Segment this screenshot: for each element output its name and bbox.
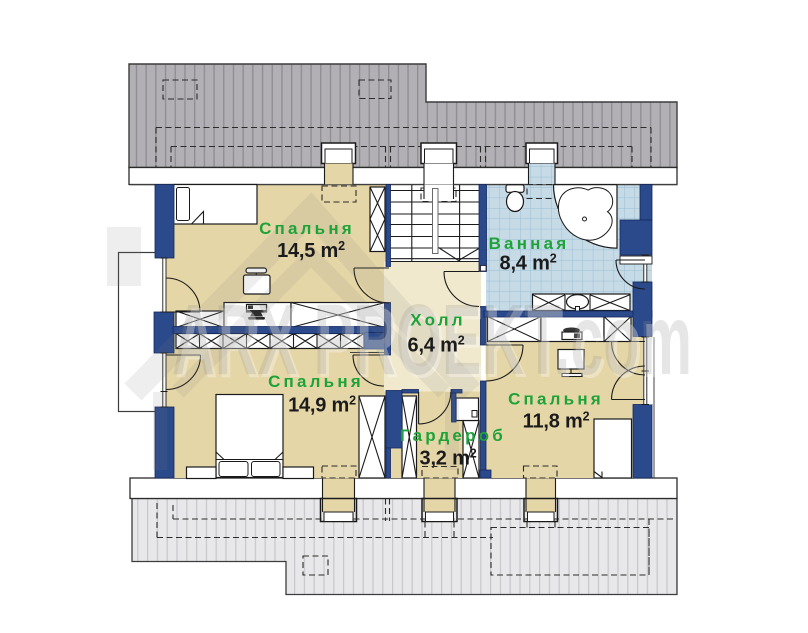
svg-text:Ванная: Ванная xyxy=(489,234,570,253)
svg-text:Гардероб: Гардероб xyxy=(400,426,506,445)
svg-text:6,4 m2: 6,4 m2 xyxy=(408,334,465,357)
svg-text:14,5 m2: 14,5 m2 xyxy=(277,239,345,262)
svg-text:14,9 m2: 14,9 m2 xyxy=(288,394,356,417)
svg-text:Спальня: Спальня xyxy=(508,390,604,409)
svg-text:Холл: Холл xyxy=(410,311,465,330)
svg-text:3,2 m2: 3,2 m2 xyxy=(420,447,477,470)
svg-text:11,8 m2: 11,8 m2 xyxy=(523,410,590,433)
svg-text:Спальня: Спальня xyxy=(268,372,364,391)
svg-text:8,4 m2: 8,4 m2 xyxy=(500,252,557,275)
svg-text:Спальня: Спальня xyxy=(259,219,355,238)
